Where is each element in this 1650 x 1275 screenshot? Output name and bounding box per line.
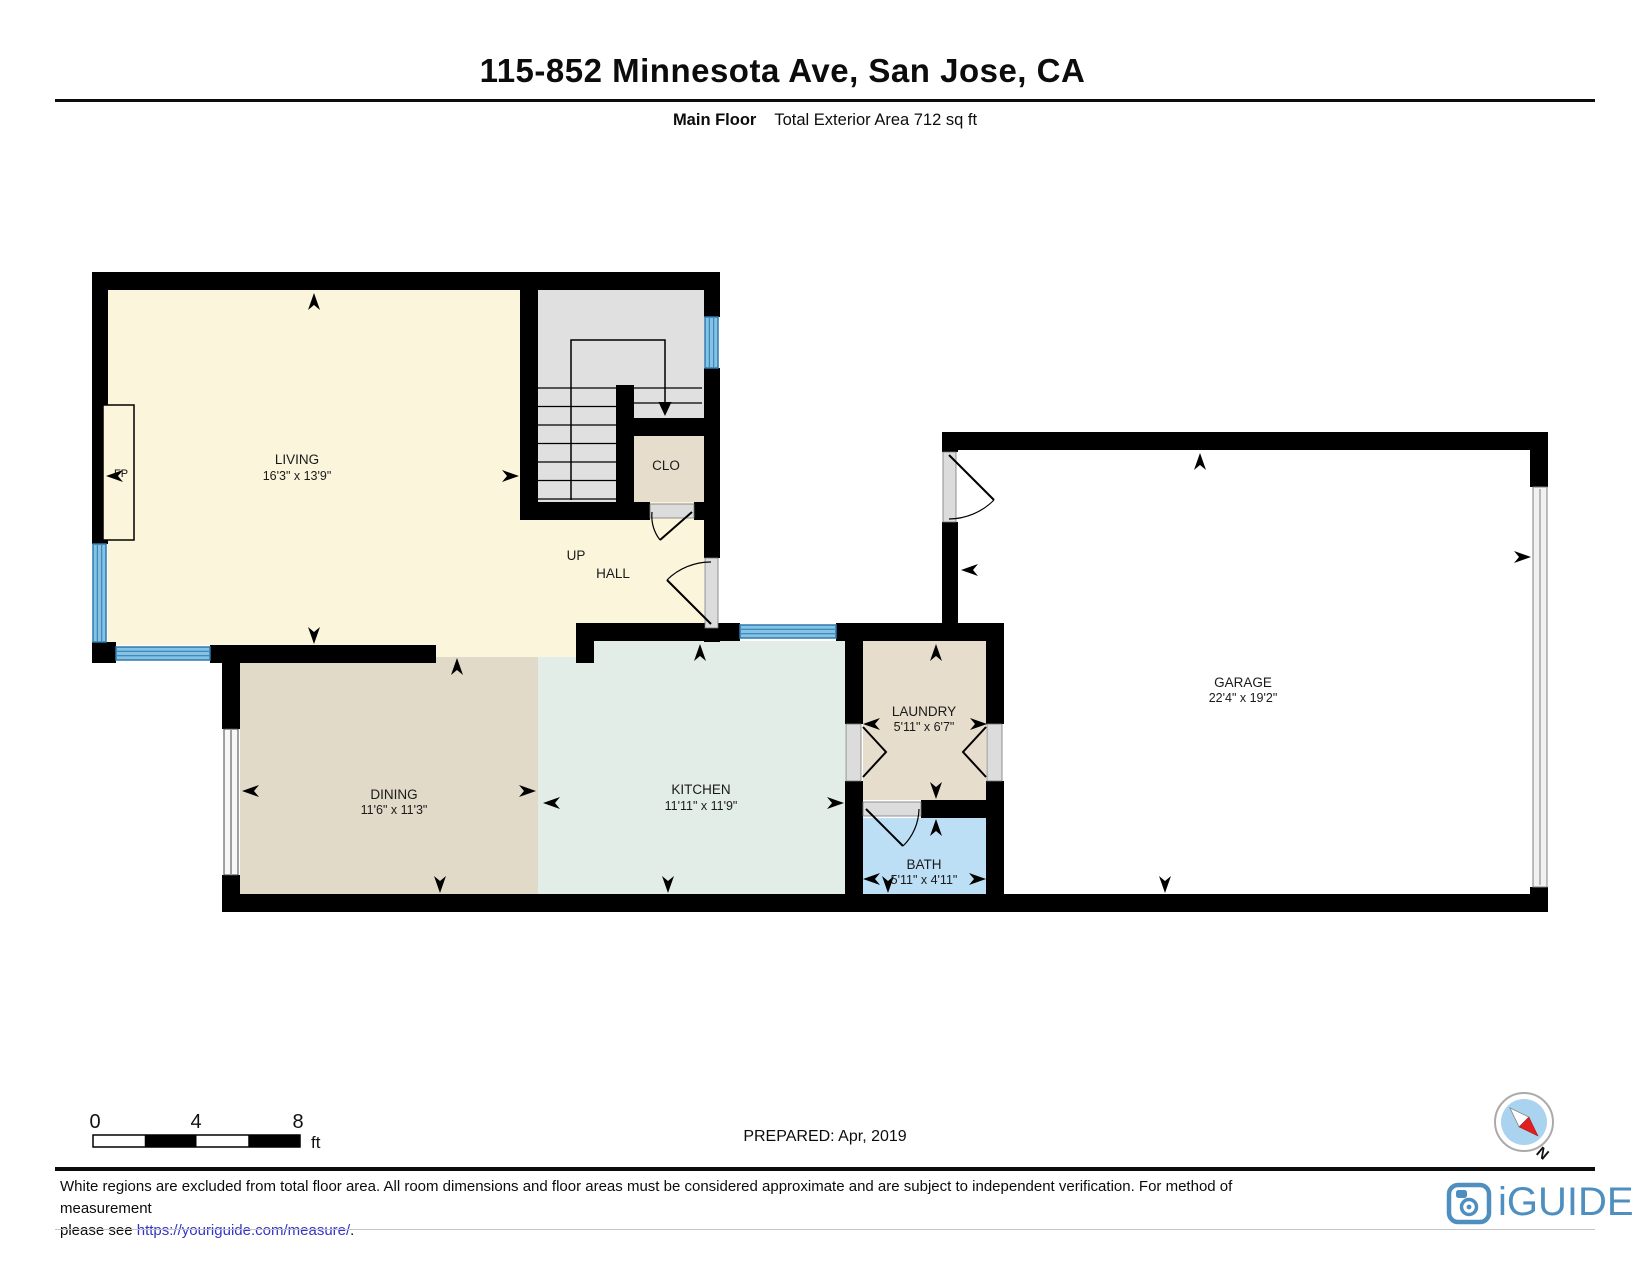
- closet-label: CLO: [652, 458, 680, 473]
- garage-door: [1533, 487, 1547, 887]
- footer-disclaimer: White regions are excluded from total fl…: [60, 1176, 1320, 1242]
- living-bottom-window: [116, 647, 210, 660]
- dining-room-area: [240, 657, 538, 894]
- kitchen-window: [740, 625, 836, 638]
- garage-dims: 22'4" x 19'2": [1209, 691, 1278, 705]
- garage-label: GARAGE: [1214, 675, 1272, 690]
- floorplan-drawing: FP: [0, 0, 1650, 1275]
- iguide-logo-text: iGUIDE: [1498, 1180, 1634, 1225]
- laundry-dims: 5'11" x 6'7": [894, 720, 955, 734]
- living-dims: 16'3" x 13'9": [263, 469, 332, 483]
- prepared-date: PREPARED: Apr, 2019: [0, 1128, 1650, 1146]
- footer-divider: [55, 1167, 1595, 1171]
- laundry-label: LAUNDRY: [892, 704, 956, 719]
- dining-window: [224, 729, 238, 875]
- kitchen-dims: 11'11" x 11'9": [665, 799, 738, 813]
- bath-label: BATH: [906, 857, 941, 872]
- measure-link[interactable]: https://youriguide.com/measure/: [137, 1222, 350, 1239]
- bottom-divider: [55, 1229, 1595, 1230]
- up-label: UP: [567, 548, 586, 563]
- kitchen-label: KITCHEN: [671, 782, 730, 797]
- kitchen-area: [538, 641, 845, 894]
- living-label: LIVING: [275, 452, 319, 467]
- camera-icon: [1446, 1181, 1492, 1225]
- bath-dims: 5'11" x 4'11": [891, 873, 958, 887]
- stairwell-window: [705, 317, 718, 368]
- living-left-window: [93, 544, 106, 642]
- dining-dims: 11'6" x 11'3": [361, 803, 428, 817]
- dining-label: DINING: [370, 787, 417, 802]
- disclaimer-line2-prefix: please see: [60, 1222, 137, 1239]
- disclaimer-line2-suffix: .: [350, 1222, 354, 1239]
- hall-label: HALL: [596, 566, 630, 581]
- floorplan-page: 115-852 Minnesota Ave, San Jose, CA Main…: [0, 0, 1650, 1275]
- disclaimer-line1: White regions are excluded from total fl…: [60, 1178, 1232, 1217]
- iguide-logo: iGUIDE: [1446, 1180, 1634, 1225]
